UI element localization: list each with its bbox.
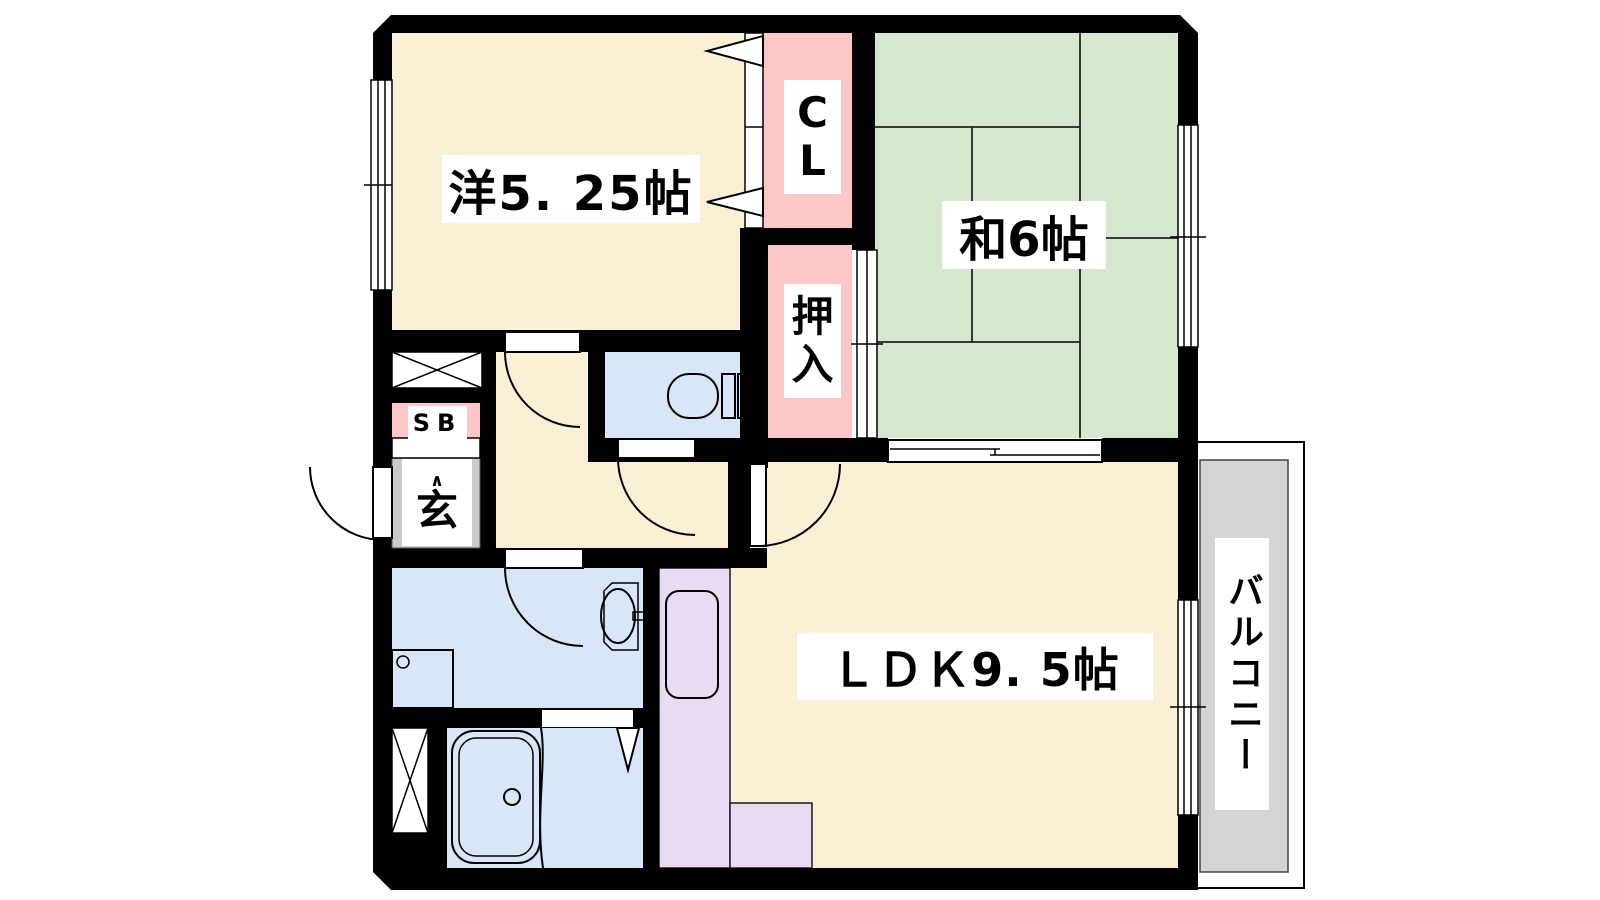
window [364, 80, 392, 290]
floorplan: 洋5. 25帖 和6帖 ＬＤＫ9. 5帖 C L 押 入 バルコニー SB ∧ … [0, 0, 1600, 900]
door-entry [310, 467, 392, 540]
meter-box [392, 352, 482, 388]
label-entrance: ∧ 玄 [402, 459, 472, 546]
label-balcony: バルコニー [1215, 538, 1269, 810]
label-japanese-room: 和6帖 [942, 201, 1106, 269]
label-cl-line2: L [799, 137, 826, 185]
kitchen-counter [659, 568, 730, 868]
label-oshiire-line1: 押 [791, 293, 833, 341]
label-entrance-char: 玄 [416, 490, 458, 532]
label-oshiire-line2: 入 [791, 341, 833, 389]
kitchen-counter-l [730, 803, 812, 868]
label-closet-cl: C L [784, 80, 841, 194]
room-toilet [603, 352, 740, 438]
room-bathroom [447, 728, 643, 868]
label-cl-line1: C [797, 89, 828, 137]
entrance-step [392, 438, 480, 458]
bath-doorway [542, 710, 633, 727]
sliding-door [888, 440, 1102, 462]
label-oshiire: 押 入 [784, 284, 841, 398]
pipe-space [392, 728, 428, 833]
label-western-room: 洋5. 25帖 [442, 155, 700, 223]
label-shoe-box: SB [408, 406, 467, 439]
label-ldk: ＬＤＫ9. 5帖 [797, 633, 1153, 700]
